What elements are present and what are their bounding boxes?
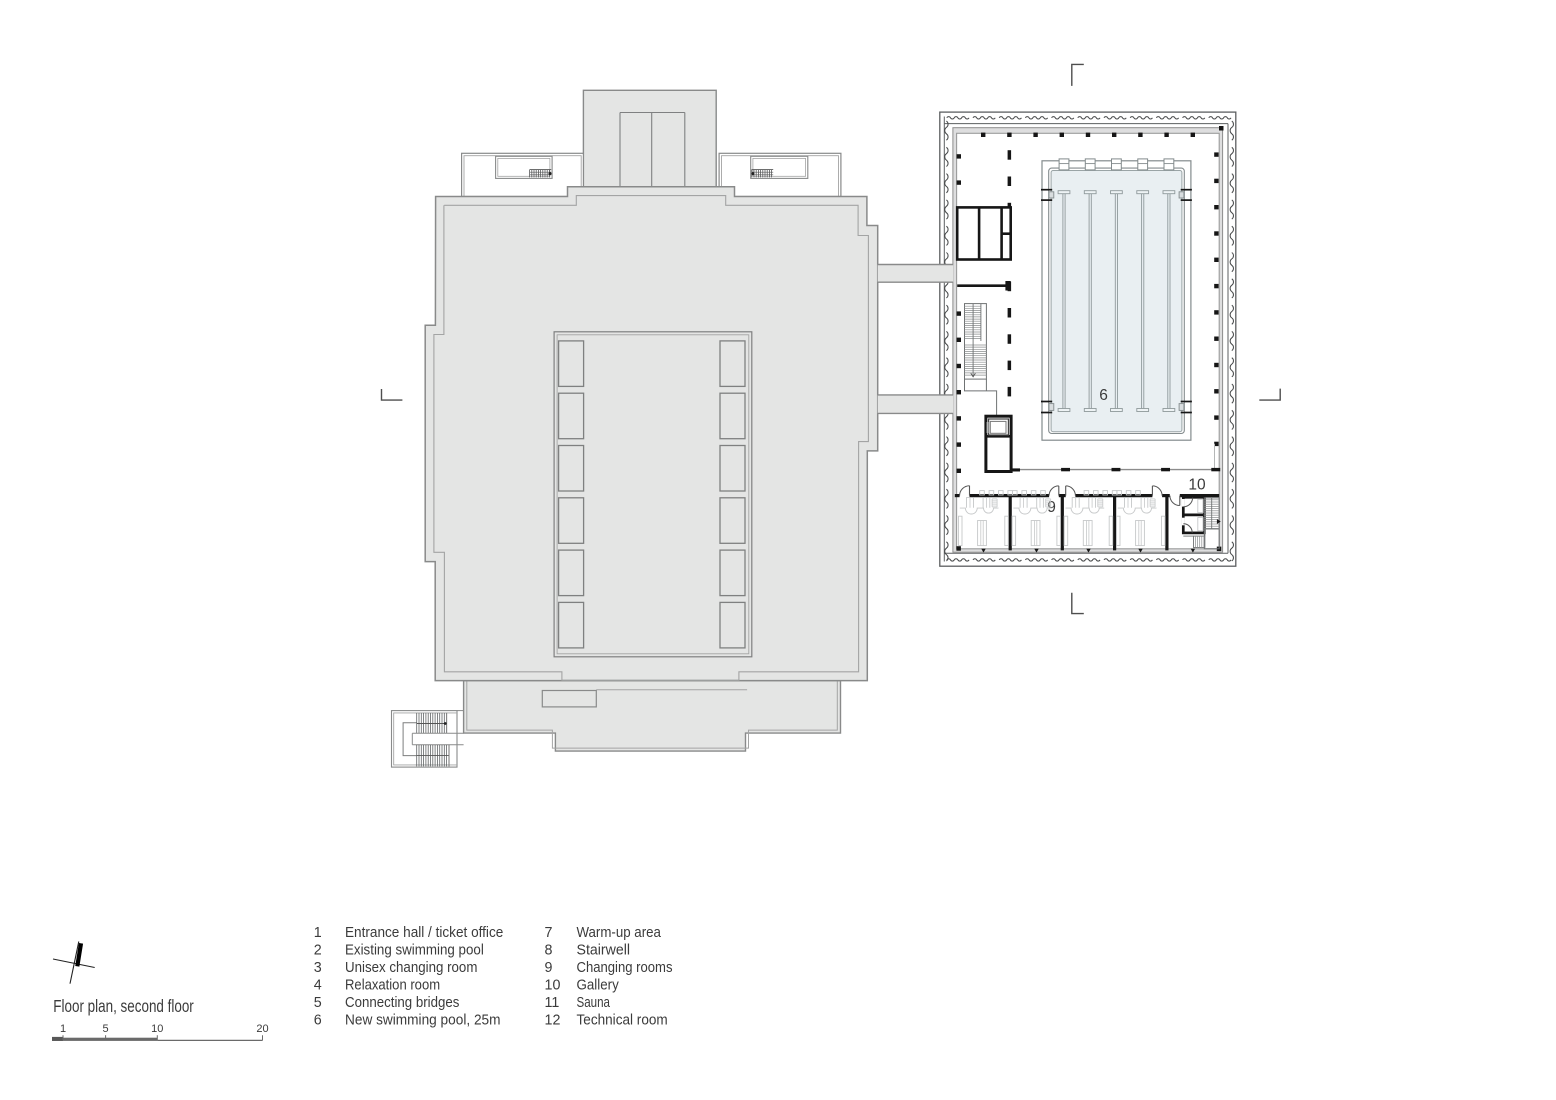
svg-text:Entrance hall / ticket office: Entrance hall / ticket office bbox=[345, 925, 503, 941]
svg-text:6: 6 bbox=[1099, 387, 1108, 404]
svg-text:Floor plan, second floor: Floor plan, second floor bbox=[53, 996, 194, 1016]
svg-text:Sauna: Sauna bbox=[577, 995, 611, 1011]
svg-text:8: 8 bbox=[545, 942, 553, 958]
svg-text:12: 12 bbox=[545, 1012, 561, 1028]
svg-text:Connecting bridges: Connecting bridges bbox=[345, 995, 459, 1011]
svg-text:Stairwell: Stairwell bbox=[577, 942, 631, 958]
svg-text:1: 1 bbox=[314, 925, 322, 941]
svg-text:4: 4 bbox=[314, 977, 322, 993]
svg-text:Relaxation room: Relaxation room bbox=[345, 977, 440, 993]
svg-text:10: 10 bbox=[545, 977, 561, 993]
svg-text:Unisex changing room: Unisex changing room bbox=[345, 960, 477, 976]
svg-text:New swimming pool, 25m: New swimming pool, 25m bbox=[345, 1012, 501, 1028]
svg-text:1: 1 bbox=[60, 1023, 66, 1035]
svg-text:11: 11 bbox=[545, 995, 560, 1011]
svg-text:2: 2 bbox=[314, 942, 322, 958]
svg-text:5: 5 bbox=[103, 1023, 109, 1035]
svg-text:6: 6 bbox=[314, 1012, 322, 1028]
svg-text:7: 7 bbox=[545, 925, 553, 941]
svg-text:10: 10 bbox=[1188, 477, 1206, 494]
svg-text:10: 10 bbox=[151, 1023, 163, 1035]
svg-text:Existing swimming pool: Existing swimming pool bbox=[345, 942, 484, 958]
svg-text:3: 3 bbox=[314, 960, 322, 976]
svg-text:Warm-up area: Warm-up area bbox=[577, 925, 661, 941]
svg-text:9: 9 bbox=[545, 960, 553, 976]
svg-text:Changing rooms: Changing rooms bbox=[577, 960, 673, 976]
svg-text:Gallery: Gallery bbox=[577, 977, 620, 993]
svg-text:20: 20 bbox=[256, 1023, 268, 1035]
svg-text:5: 5 bbox=[314, 995, 322, 1011]
svg-text:Technical room: Technical room bbox=[577, 1012, 668, 1028]
svg-text:9: 9 bbox=[1047, 499, 1056, 516]
